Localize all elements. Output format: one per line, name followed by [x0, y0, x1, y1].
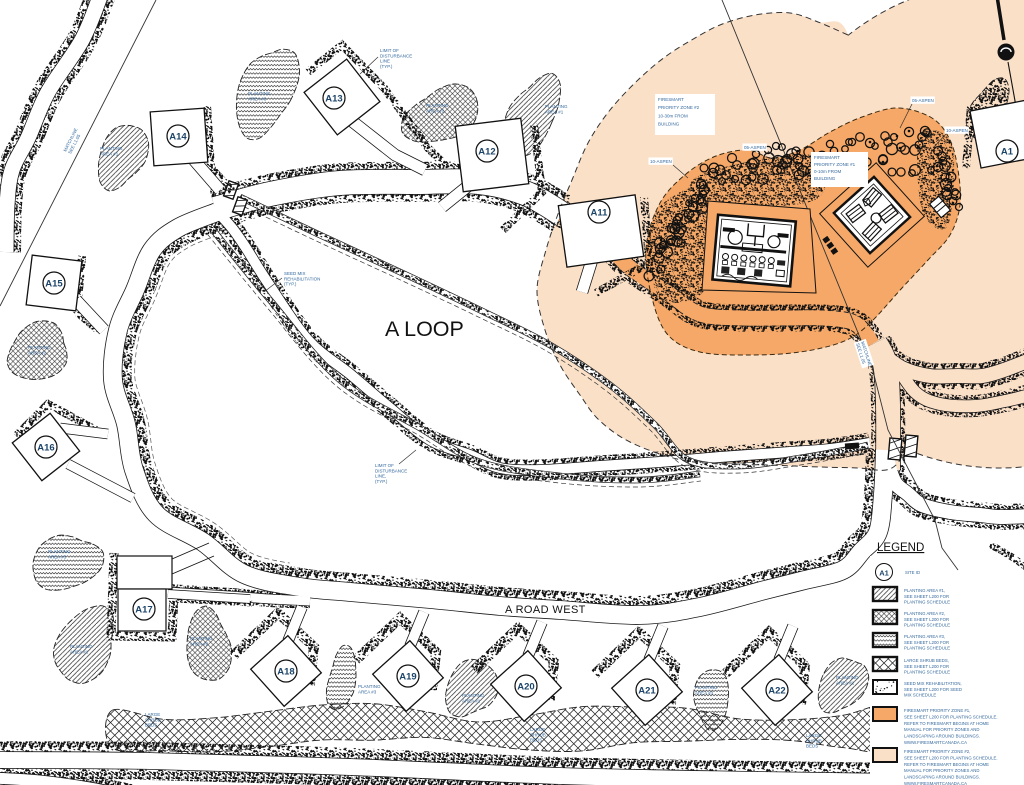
svg-text:A17: A17	[135, 604, 152, 615]
svg-text:A11: A11	[591, 207, 609, 218]
svg-text:A16: A16	[37, 442, 54, 453]
svg-text:A13: A13	[325, 93, 342, 104]
svg-text:10-ASPEN: 10-ASPEN	[650, 159, 672, 164]
svg-text:A12: A12	[478, 146, 495, 157]
svg-text:PLANTING AREA #2,SEE SHEET L20: PLANTING AREA #2,SEE SHEET L200 FORPLANT…	[904, 611, 950, 628]
svg-text:05-ASPEN: 05-ASPEN	[912, 98, 934, 103]
svg-text:A19: A19	[399, 671, 416, 682]
svg-text:10-ASPEN: 10-ASPEN	[946, 128, 968, 133]
svg-text:A1: A1	[879, 568, 889, 577]
svg-text:A1: A1	[1001, 146, 1014, 157]
svg-text:A14: A14	[169, 131, 187, 142]
svg-text:SITE ID: SITE ID	[905, 570, 920, 575]
svg-text:A15: A15	[45, 278, 63, 289]
svg-text:PLANTING AREA #3,SEE SHEET L20: PLANTING AREA #3,SEE SHEET L200 FORPLANT…	[904, 634, 950, 651]
svg-text:PLANTING AREA #1,SEE SHEET L20: PLANTING AREA #1,SEE SHEET L200 FORPLANT…	[904, 588, 950, 605]
svg-text:A18: A18	[277, 666, 294, 677]
svg-text:05-ASPEN: 05-ASPEN	[744, 145, 766, 150]
svg-text:A22: A22	[768, 685, 785, 696]
svg-text:LARGE SHRUB BEDS,SEE SHEET L20: LARGE SHRUB BEDS,SEE SHEET L200 FORPLANT…	[904, 658, 950, 675]
svg-text:A21: A21	[638, 685, 656, 696]
svg-text:A20: A20	[517, 681, 534, 692]
svg-text:A ROAD WEST: A ROAD WEST	[505, 604, 586, 616]
svg-text:LEGEND: LEGEND	[877, 542, 924, 554]
svg-text:A LOOP: A LOOP	[385, 317, 464, 341]
